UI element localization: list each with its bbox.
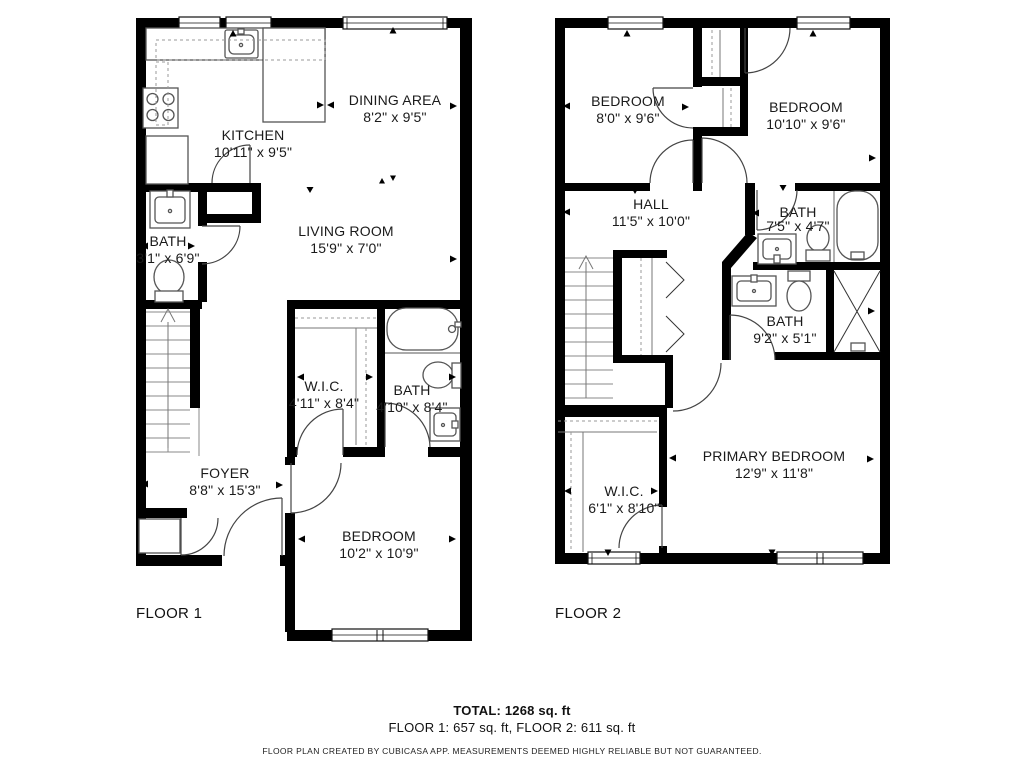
room-name: BATH xyxy=(376,382,447,399)
room-label-dining-area: DINING AREA 8'2" x 9'5" xyxy=(349,92,441,125)
room-dims: 10'10" x 9'6" xyxy=(766,116,845,133)
room-dims: 10'2" x 10'9" xyxy=(339,545,418,562)
room-label-bedroom-right: BEDROOM 10'10" x 9'6" xyxy=(766,99,845,132)
room-name: BEDROOM xyxy=(766,99,845,116)
room-label-wic-1: W.I.C. 4'11" x 8'4" xyxy=(289,378,359,411)
room-dims: 8'8" x 15'3" xyxy=(189,482,260,499)
room-name: W.I.C. xyxy=(588,483,659,500)
room-dims: 7'5" x 4'7" xyxy=(766,219,829,233)
floor2-stairs xyxy=(565,256,613,398)
floor2-tag: FLOOR 2 xyxy=(555,605,621,622)
room-dims: 4'11" x 8'4" xyxy=(289,395,359,412)
room-name: W.I.C. xyxy=(289,378,359,395)
room-label-primary-bedroom: PRIMARY BEDROOM 12'9" x 11'8" xyxy=(703,448,846,481)
room-label-bath-1: BATH 3'1" x 6'9" xyxy=(136,233,199,266)
floorplan-page: KITCHEN 10'11" x 9'5" DINING AREA 8'2" x… xyxy=(0,0,1024,768)
floorplan-canvas xyxy=(0,0,1024,768)
room-dims: 8'0" x 9'6" xyxy=(591,110,665,127)
room-name: FOYER xyxy=(189,465,260,482)
room-dims: 10'11" x 9'5" xyxy=(214,144,292,161)
room-label-living-room: LIVING ROOM 15'9" x 7'0" xyxy=(298,223,394,256)
room-name: DINING AREA xyxy=(349,92,441,109)
room-name: HALL xyxy=(612,196,690,213)
room-label-wic-2: W.I.C. 6'1" x 8'10" xyxy=(588,483,659,516)
room-name: BATH xyxy=(766,205,829,219)
room-name: BATH xyxy=(136,233,199,250)
room-dims: 15'9" x 7'0" xyxy=(298,240,394,257)
room-label-bedroom-f1: BEDROOM 10'2" x 10'9" xyxy=(339,528,418,561)
room-name: PRIMARY BEDROOM xyxy=(703,448,846,465)
room-dims: 9'2" x 5'1" xyxy=(753,330,816,347)
room-name: BATH xyxy=(753,313,816,330)
room-label-bath-2: BATH 4'10" x 8'4" xyxy=(376,382,447,415)
room-name: BEDROOM xyxy=(591,93,665,110)
room-name: BEDROOM xyxy=(339,528,418,545)
room-label-bath-lower: BATH 9'2" x 5'1" xyxy=(753,313,816,346)
summary-footer: TOTAL: 1268 sq. ft FLOOR 1: 657 sq. ft, … xyxy=(0,703,1024,756)
room-dims: 12'9" x 11'8" xyxy=(703,465,846,482)
total-area-text: TOTAL: 1268 sq. ft xyxy=(0,703,1024,718)
room-name: LIVING ROOM xyxy=(298,223,394,240)
room-name: KITCHEN xyxy=(214,127,292,144)
floor1-tag: FLOOR 1 xyxy=(136,605,202,622)
room-dims: 3'1" x 6'9" xyxy=(136,250,199,267)
room-dims: 6'1" x 8'10" xyxy=(588,500,659,517)
room-label-bath-upper: BATH 7'5" x 4'7" xyxy=(766,205,829,233)
disclaimer-text: FLOOR PLAN CREATED BY CUBICASA APP. MEAS… xyxy=(0,746,1024,756)
room-label-foyer: FOYER 8'8" x 15'3" xyxy=(189,465,260,498)
room-label-hall: HALL 11'5" x 10'0" xyxy=(612,196,690,229)
room-dims: 4'10" x 8'4" xyxy=(376,399,447,416)
floor-breakdown-text: FLOOR 1: 657 sq. ft, FLOOR 2: 611 sq. ft xyxy=(0,720,1024,735)
room-label-kitchen: KITCHEN 10'11" x 9'5" xyxy=(214,127,292,160)
room-dims: 8'2" x 9'5" xyxy=(349,109,441,126)
room-dims: 11'5" x 10'0" xyxy=(612,213,690,230)
room-label-bedroom-left: BEDROOM 8'0" x 9'6" xyxy=(591,93,665,126)
